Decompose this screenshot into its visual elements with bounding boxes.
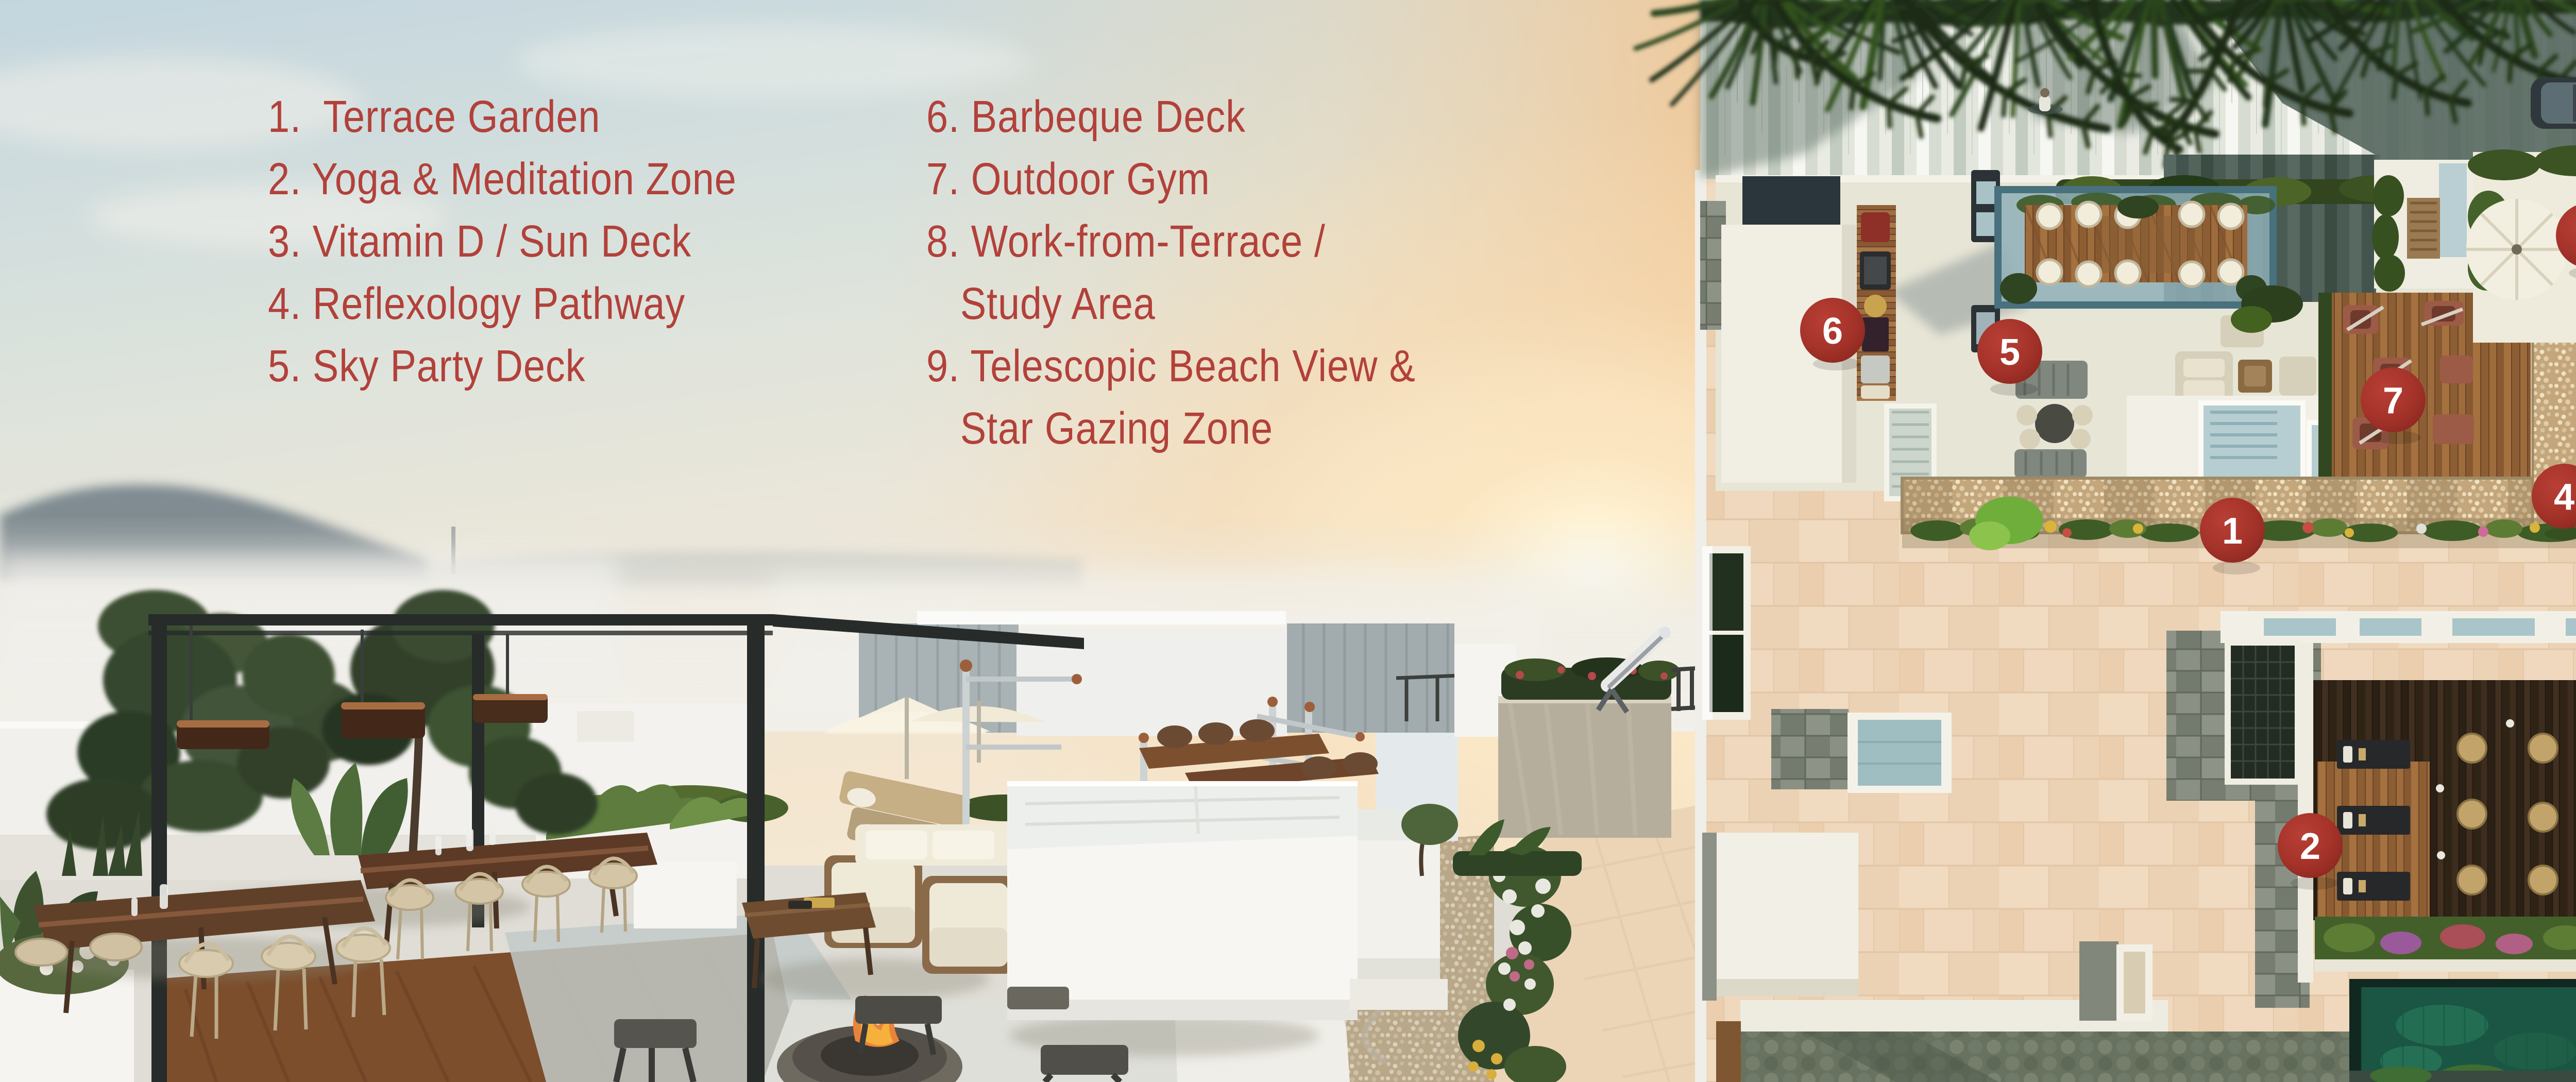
svg-text:7: 7 bbox=[2383, 380, 2403, 421]
svg-text:6: 6 bbox=[1822, 311, 1843, 352]
svg-text:1: 1 bbox=[2222, 511, 2243, 552]
svg-text:5: 5 bbox=[1999, 332, 2020, 373]
svg-text:4: 4 bbox=[2554, 477, 2574, 518]
svg-text:2: 2 bbox=[2300, 826, 2320, 867]
